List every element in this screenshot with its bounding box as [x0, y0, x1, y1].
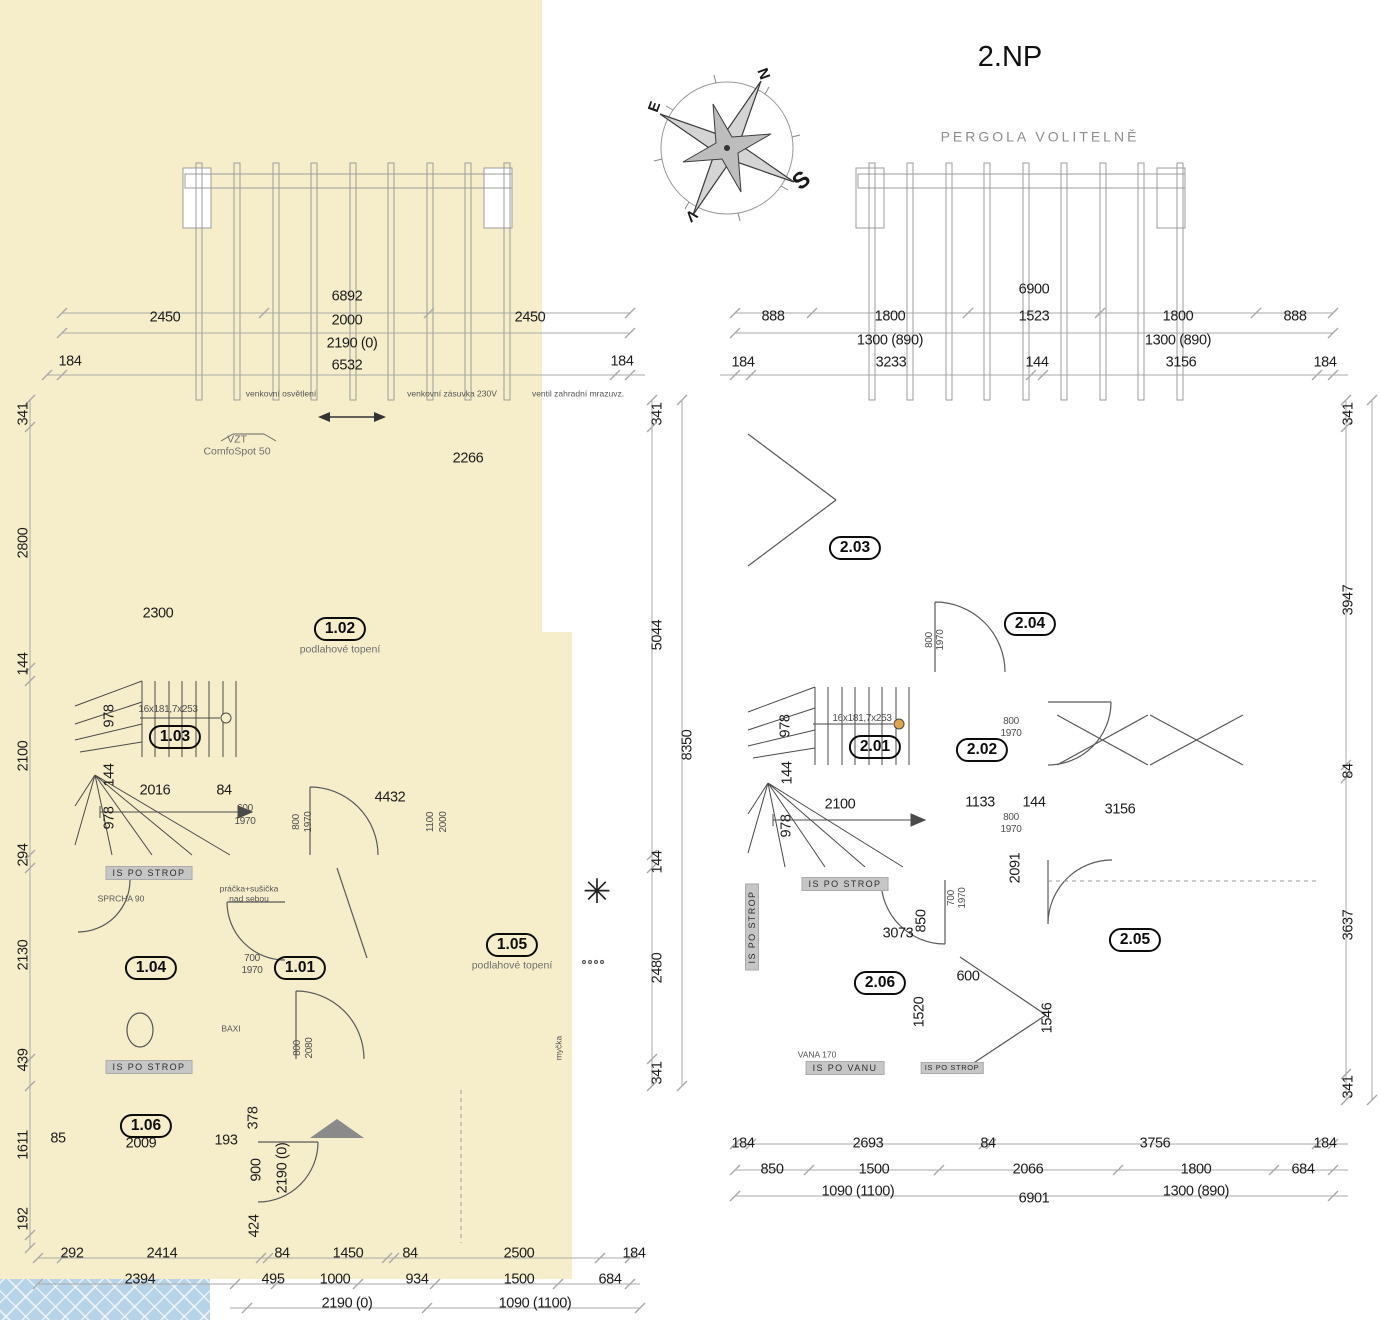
- dim-label: 341: [650, 403, 665, 426]
- dim-label: 192: [16, 1208, 31, 1231]
- dim-label: 144: [650, 851, 665, 874]
- dim-label: 84: [402, 1246, 417, 1261]
- dim-label: 2130: [16, 940, 31, 971]
- room-label-2.05: 2.05: [1109, 928, 1161, 952]
- dim-label: 6532: [332, 358, 363, 373]
- dim-label: IS PO STROP: [745, 884, 759, 971]
- dim-label: 1300 (890): [1163, 1184, 1229, 1199]
- room-label-1.05: 1.05: [486, 933, 538, 957]
- dim-label: 3233: [876, 355, 907, 370]
- room-label-1.03: 1.03: [149, 725, 201, 749]
- dim-label: 1970: [1000, 825, 1021, 836]
- dim-label: ✳: [583, 875, 612, 911]
- dim-label: 2000: [332, 313, 363, 328]
- dim-label: 1800: [1163, 309, 1194, 324]
- dimension-lines: [25, 308, 1377, 1313]
- dim-label: 978: [102, 807, 117, 830]
- dim-label: 2414: [147, 1246, 178, 1261]
- dim-label: 800: [1003, 717, 1019, 728]
- dim-label: BAXI: [221, 1025, 240, 1034]
- dim-label: 85: [50, 1131, 65, 1146]
- room-label-1.02: 1.02: [314, 617, 366, 641]
- dim-label: 1090 (1100): [499, 1296, 572, 1311]
- dim-label: 2300: [143, 606, 174, 621]
- dim-label: 978: [102, 705, 117, 728]
- dim-label: 1300 (890): [857, 333, 923, 348]
- dim-label: 888: [1284, 309, 1307, 324]
- dim-label: 8350: [680, 730, 695, 761]
- dim-label: 2450: [515, 310, 546, 325]
- dim-label: 900: [249, 1159, 264, 1182]
- dim-label: 2091: [1008, 853, 1023, 884]
- dim-label: 2100: [825, 797, 856, 812]
- dim-label: 1520: [912, 997, 927, 1028]
- dim-label: 341: [16, 403, 31, 426]
- dim-label: 2190 (0): [275, 1143, 290, 1194]
- dim-label: 144: [1023, 795, 1046, 810]
- dim-label: 1970: [936, 629, 947, 650]
- dim-label: 184: [611, 354, 634, 369]
- dim-label: 193: [215, 1133, 238, 1148]
- dim-label: myčka: [555, 1036, 564, 1061]
- dim-label: nad sebou: [229, 895, 269, 904]
- dim-label: 1970: [1000, 729, 1021, 740]
- dim-label: 1133: [965, 795, 995, 810]
- dim-label: 1090 (1100): [822, 1184, 895, 1199]
- dim-label: 341: [1341, 403, 1356, 426]
- dim-label: 144: [1026, 355, 1049, 370]
- dim-label: 84: [1341, 763, 1356, 778]
- entrance-marker: [310, 1119, 364, 1138]
- dim-label: 1970: [241, 966, 262, 977]
- dim-label: 144: [102, 764, 117, 787]
- dim-label: 3073: [883, 926, 914, 941]
- dim-label: VZT: [227, 434, 247, 445]
- dim-label: 184: [1314, 1136, 1337, 1151]
- dim-label: 888: [762, 309, 785, 324]
- dim-label: 6900: [1019, 282, 1050, 297]
- dim-label: 2480: [650, 953, 665, 984]
- dim-label: 1100: [426, 812, 437, 832]
- dim-label: 1450: [333, 1246, 364, 1261]
- dim-label: venkovní zásuvka 230V: [407, 390, 497, 399]
- dim-label: 16x181,7x253: [832, 714, 891, 725]
- dim-label: 2100: [16, 741, 31, 772]
- dim-label: 84: [274, 1246, 289, 1261]
- dim-label: 3156: [1105, 802, 1136, 817]
- dim-label: 4432: [375, 790, 406, 805]
- dim-label: 294: [16, 844, 31, 867]
- dim-label: 600: [957, 969, 980, 984]
- dim-label: 2190 (0): [322, 1296, 373, 1311]
- room-note: podlahové topení: [472, 960, 553, 971]
- dim-label: 16x181,7x253: [138, 705, 197, 716]
- dim-label: 2000: [439, 811, 450, 832]
- dim-label: IS PO VANU: [806, 1061, 885, 1075]
- dim-label: 2450: [150, 310, 181, 325]
- dim-label: 6901: [1019, 1191, 1050, 1206]
- dim-label: 341: [650, 1062, 665, 1085]
- room-label-2.03: 2.03: [829, 536, 881, 560]
- dim-label: 1970: [234, 817, 255, 828]
- dim-label: 800: [293, 1040, 304, 1056]
- dim-label: 1970: [304, 811, 315, 832]
- dim-label: 1500: [504, 1272, 535, 1287]
- dim-label: 3947: [1341, 585, 1356, 616]
- dim-label: 292: [61, 1246, 84, 1261]
- room-label-1.01: 1.01: [274, 956, 326, 980]
- dim-label: 700: [947, 890, 958, 906]
- dim-label: 2500: [504, 1246, 535, 1261]
- floorplan-canvas: 1.NP 2.NP PERGOLA VOLITELNĚ PERGOLA VOLI…: [0, 0, 1380, 1320]
- dim-label: 144: [780, 762, 795, 785]
- dim-label: 2693: [853, 1136, 884, 1151]
- dim-label: 184: [623, 1246, 646, 1261]
- dim-label: 1611: [16, 1130, 31, 1160]
- drawing-lines: [0, 0, 1380, 1320]
- dim-label: práčka+sušička: [220, 885, 279, 894]
- dim-label: IS PO STROP: [106, 866, 193, 880]
- dim-label: 424: [247, 1215, 262, 1238]
- dim-label: 934: [406, 1272, 429, 1287]
- dim-label: 2009: [126, 1136, 157, 1151]
- dim-label: 144: [16, 653, 31, 676]
- room-label-2.06: 2.06: [854, 971, 906, 995]
- dim-label: 341: [1341, 1076, 1356, 1099]
- dim-label: 5044: [650, 620, 665, 651]
- dim-label: 6892: [332, 289, 363, 304]
- dim-label: 800: [925, 632, 936, 648]
- dim-label: 1300 (890): [1145, 333, 1211, 348]
- dim-label: 3156: [1166, 355, 1197, 370]
- dim-label: 184: [732, 355, 755, 370]
- door-swings: [227, 602, 1112, 1202]
- dim-label: 850: [914, 910, 929, 933]
- dim-label: 184: [1314, 355, 1337, 370]
- dim-label: venkovní osvětlení: [246, 390, 316, 399]
- room-label-2.04: 2.04: [1004, 612, 1056, 636]
- compass-rose: [654, 75, 800, 221]
- dim-label: 978: [779, 815, 794, 838]
- dim-label: 800: [1003, 813, 1019, 824]
- dim-label: 2394: [125, 1272, 156, 1287]
- dim-label: 850: [761, 1162, 784, 1177]
- dim-label: 184: [59, 354, 82, 369]
- room-label-2.01: 2.01: [849, 735, 901, 759]
- room-note: podlahové topení: [300, 644, 381, 655]
- dim-label: 3756: [1140, 1136, 1171, 1151]
- dim-label: VANA 170: [798, 1051, 837, 1060]
- dim-label: 978: [778, 715, 793, 738]
- dim-label: 700: [244, 954, 260, 965]
- dim-label: 800: [292, 814, 303, 830]
- dim-label: 1970: [958, 887, 969, 908]
- dim-label: 1500: [859, 1162, 890, 1177]
- dim-label: 2066: [1013, 1162, 1044, 1177]
- dim-label: ComfoSpot 50: [203, 446, 270, 457]
- room-label-2.02: 2.02: [956, 738, 1008, 762]
- dim-label: 1523: [1019, 309, 1050, 324]
- annotation-arrows: [221, 412, 386, 1138]
- dim-label: 2190 (0): [327, 336, 378, 351]
- room-label-1.06: 1.06: [120, 1114, 172, 1138]
- dim-label: 495: [262, 1272, 285, 1287]
- dim-label: SPRCHA 90: [98, 895, 145, 904]
- dim-label: 684: [1292, 1162, 1315, 1177]
- dim-label: 184: [732, 1136, 755, 1151]
- dim-label: 684: [599, 1272, 622, 1287]
- dim-label: 1000: [320, 1272, 351, 1287]
- dim-label: 439: [16, 1049, 31, 1072]
- dim-label: IS PO STROP: [802, 877, 889, 891]
- dim-label: 2266: [453, 451, 484, 466]
- dim-label: 3637: [1341, 910, 1356, 941]
- dim-label: 84: [216, 783, 231, 798]
- dim-label: 2016: [140, 783, 171, 798]
- dim-label: IS PO STROP: [106, 1060, 193, 1074]
- room-label-1.04: 1.04: [125, 956, 177, 980]
- dim-label: 378: [246, 1107, 261, 1130]
- dim-label: IS PO STROP: [921, 1062, 984, 1074]
- dim-label: 84: [980, 1136, 995, 1151]
- dim-label: ventil zahradní mrazuvz.: [532, 390, 624, 399]
- dim-label: 1800: [1181, 1162, 1212, 1177]
- dim-label: 600: [237, 804, 253, 815]
- dim-label: 1546: [1040, 1003, 1055, 1034]
- dim-label: 1800: [875, 309, 906, 324]
- dim-label: 2800: [16, 528, 31, 559]
- dim-label: 2080: [305, 1037, 316, 1058]
